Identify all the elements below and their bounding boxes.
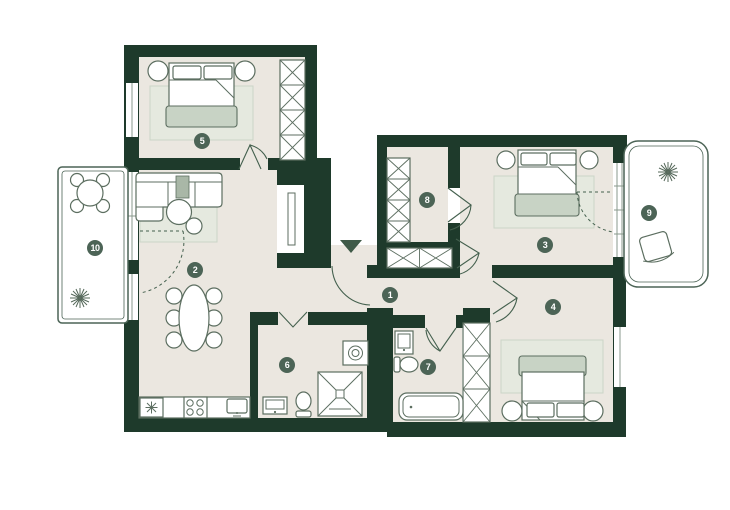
sofa-cushion: [176, 176, 189, 198]
room-badge-9: 9: [641, 205, 657, 221]
sink: [395, 331, 413, 354]
nightstand: [497, 151, 515, 169]
room-badge-7: 7: [420, 359, 436, 375]
room-badge-5: 5: [194, 133, 210, 149]
dining-table-set: [166, 285, 222, 351]
room-badge-4: 4: [545, 299, 561, 315]
wardrobe: [280, 60, 305, 160]
sink: [263, 397, 287, 414]
plant-icon: [658, 162, 678, 182]
double-bed: [166, 63, 237, 127]
room-badge-3: 3: [537, 237, 553, 253]
cooktop: [184, 397, 207, 418]
toilet: [296, 392, 311, 417]
room-badge-10: 10: [87, 240, 103, 256]
nightstand: [502, 401, 522, 421]
room-badge-8: 8: [419, 192, 435, 208]
double-bed: [515, 150, 579, 216]
balcony-9: [624, 141, 708, 287]
room-badge-2: 2: [187, 262, 203, 278]
shower: [318, 372, 362, 416]
wardrobe: [463, 323, 490, 422]
plant-icon: [70, 288, 90, 308]
washing-machine: [343, 341, 368, 365]
floorplan-drawing: [0, 0, 730, 510]
tv-unit: [277, 185, 304, 253]
nightstand: [235, 61, 255, 81]
side-table: [186, 218, 202, 234]
room-badge-1: 1: [382, 287, 398, 303]
nightstand: [148, 61, 168, 81]
shelving-x-hatch: [387, 158, 410, 242]
toilet: [394, 357, 418, 372]
bathtub: [399, 393, 463, 420]
room-badge-6: 6: [279, 357, 295, 373]
hallway-wardrobe: [387, 248, 452, 268]
double-bed: [519, 356, 586, 420]
kitchen-counter: [139, 397, 250, 418]
nightstand: [583, 401, 603, 421]
apartment-floor-plan: 1 2 3 4 5 6 7 8 9 10: [0, 0, 730, 510]
snowflake-icon: [146, 402, 158, 414]
nightstand: [580, 151, 598, 169]
kitchen-sink: [227, 399, 247, 413]
